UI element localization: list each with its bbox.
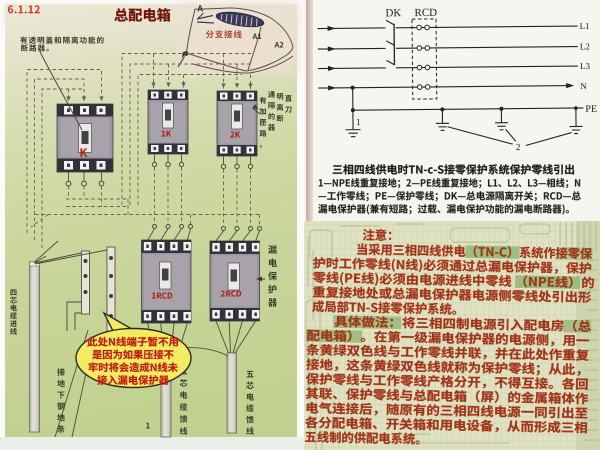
svg-text:RCD: RCD	[414, 7, 437, 19]
svg-text:PE: PE	[585, 104, 597, 115]
svg-text:2: 2	[516, 143, 521, 153]
svg-text:1: 1	[356, 118, 361, 128]
svg-text:N: N	[580, 81, 587, 91]
svg-text:DK: DK	[385, 7, 401, 19]
svg-text:L3: L3	[580, 61, 591, 71]
svg-text:L1: L1	[580, 21, 590, 31]
svg-text:L2: L2	[580, 41, 590, 51]
